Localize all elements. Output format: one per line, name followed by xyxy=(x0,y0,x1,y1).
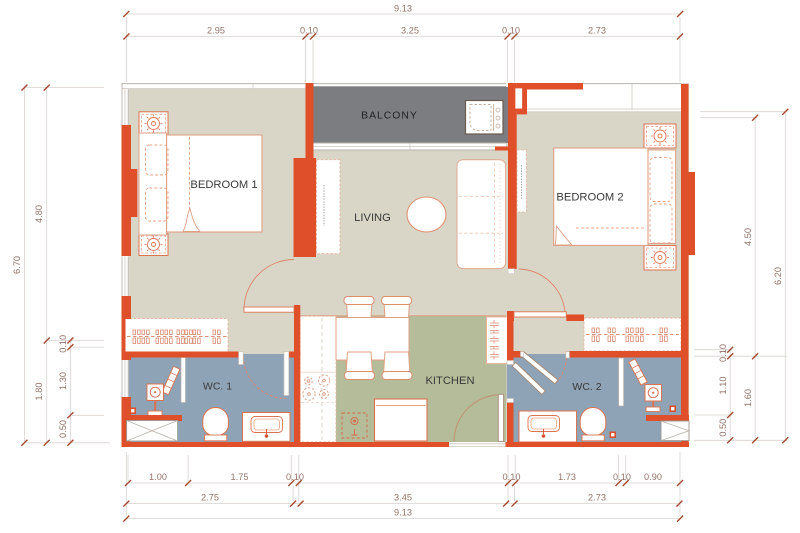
svg-text:1.60: 1.60 xyxy=(743,389,753,407)
svg-text:BEDROOM 1: BEDROOM 1 xyxy=(190,179,257,191)
svg-text:6.70: 6.70 xyxy=(12,256,22,274)
svg-text:0.10: 0.10 xyxy=(300,26,318,36)
svg-text:3.45: 3.45 xyxy=(394,493,412,503)
svg-text:0.50: 0.50 xyxy=(58,420,68,438)
svg-text:1.10: 1.10 xyxy=(718,377,728,395)
svg-text:0.10: 0.10 xyxy=(58,335,68,353)
svg-text:0.10: 0.10 xyxy=(613,472,631,482)
svg-text:1.00: 1.00 xyxy=(149,472,167,482)
svg-text:6.20: 6.20 xyxy=(773,267,783,285)
svg-text:4.50: 4.50 xyxy=(743,228,753,246)
svg-text:KITCHEN: KITCHEN xyxy=(425,375,474,387)
svg-text:2.73: 2.73 xyxy=(588,493,606,503)
svg-text:1.80: 1.80 xyxy=(34,383,44,401)
svg-text:0.90: 0.90 xyxy=(644,472,662,482)
svg-text:4.80: 4.80 xyxy=(34,205,44,223)
svg-text:WC. 2: WC. 2 xyxy=(572,381,601,393)
svg-text:3.25: 3.25 xyxy=(401,26,419,36)
svg-text:9.13: 9.13 xyxy=(394,4,412,14)
svg-text:LIVING: LIVING xyxy=(354,212,391,224)
svg-text:2.73: 2.73 xyxy=(588,26,606,36)
svg-text:WC. 1: WC. 1 xyxy=(203,381,232,393)
svg-text:BALCONY: BALCONY xyxy=(361,111,418,122)
svg-text:1.73: 1.73 xyxy=(558,472,576,482)
svg-text:2.95: 2.95 xyxy=(207,26,225,36)
svg-text:0.10: 0.10 xyxy=(286,472,304,482)
svg-text:2.75: 2.75 xyxy=(201,493,219,503)
svg-text:0.10: 0.10 xyxy=(502,26,520,36)
svg-text:1.75: 1.75 xyxy=(231,472,249,482)
svg-text:0.50: 0.50 xyxy=(718,419,728,437)
svg-text:BEDROOM 2: BEDROOM 2 xyxy=(556,192,623,204)
svg-text:1.30: 1.30 xyxy=(58,372,68,390)
svg-text:9.13: 9.13 xyxy=(394,508,412,518)
svg-text:0.10: 0.10 xyxy=(503,472,521,482)
svg-text:0.10: 0.10 xyxy=(718,344,728,362)
